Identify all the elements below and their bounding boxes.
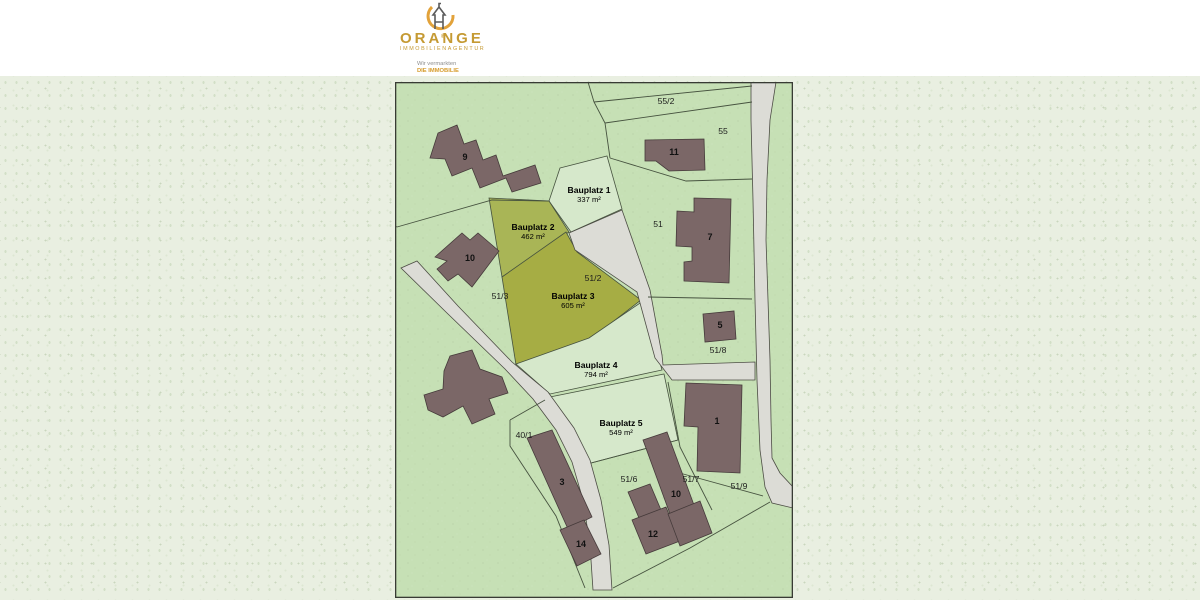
parcel-label-51-9: 51/9 [731,481,748,491]
brand-subtitle: IMMOBILIENAGENTUR [400,46,480,53]
parcel-label-51-7: 51/7 [683,474,700,484]
building-7-label: 7 [707,232,712,242]
tagline-line2: DIE IMMOBILIE [417,68,459,75]
building-11-label: 11 [669,147,679,157]
site-plan-map: 91011751314121055/2555151/351/251/840/15… [395,82,793,598]
building-10-label: 10 [465,253,475,263]
building-9-label: 9 [462,152,467,162]
brand-tagline: Wir vermarkten DIE IMMOBILIE [417,61,459,75]
plot-label-name: Bauplatz 4 [575,360,618,370]
plot-label-name: Bauplatz 1 [568,185,611,195]
parcel-label-40-1: 40/1 [516,430,533,440]
building-12-label: 12 [648,529,658,539]
plot-label-area: 462 m² [521,232,545,241]
site-plan: 91011751314121055/2555151/351/251/840/15… [395,82,793,598]
orange-logo: ORANGE® IMMOBILIENAGENTUR [400,2,480,53]
logo-house-glyph [433,4,445,30]
plot-label-area: 794 m² [584,370,608,379]
parcel-label-51-6: 51/6 [621,474,638,484]
plot-label-area: 337 m² [577,195,601,204]
parcel-label-55-2: 55/2 [658,96,675,106]
parcel-label-51-3: 51/3 [492,291,509,301]
plot-label-name: Bauplatz 3 [552,291,595,301]
building-3-label: 3 [559,477,564,487]
parcel-label-51-8: 51/8 [710,345,727,355]
tagline-line1: Wir vermarkten [417,61,459,68]
orange-logo-icon [422,2,458,32]
building-1-label: 1 [714,416,719,426]
parcel-label-51-2: 51/2 [585,273,602,283]
building-5-label: 5 [717,320,722,330]
plot-label-name: Bauplatz 5 [600,418,643,428]
plot-label-name: Bauplatz 2 [512,222,555,232]
plot-label-area: 605 m² [561,301,585,310]
parcel-label-55: 55 [718,126,728,136]
building-14-label: 14 [576,539,586,549]
plot-label-area: 549 m² [609,428,633,437]
building-10b-label: 10 [671,489,681,499]
registered-mark: ® [441,30,445,44]
brand-name: ORANGE® [400,32,480,46]
parcel-label-51: 51 [653,219,663,229]
